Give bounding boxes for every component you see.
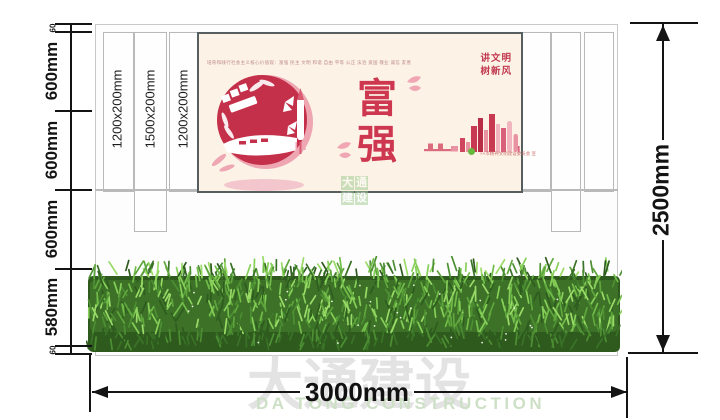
pink-leaf-spray bbox=[210, 152, 235, 173]
arrowhead-up-icon bbox=[656, 25, 670, 41]
post-size-label-2: 1500x200mm bbox=[143, 70, 158, 149]
dim-segment-bottom-cap: 60 bbox=[49, 346, 58, 355]
post-right-2 bbox=[551, 32, 581, 232]
dim-tick bbox=[55, 345, 92, 347]
total-height-label: 2500mm bbox=[646, 140, 677, 240]
arrowhead-right-icon bbox=[611, 386, 627, 398]
slogan-line-1: 讲文明 bbox=[480, 53, 512, 66]
arrowhead-down-icon bbox=[656, 335, 670, 351]
watermark-mini-logo: 大 通 建 设 bbox=[341, 176, 368, 205]
slogan-line-2: 树新风 bbox=[480, 66, 512, 79]
headline-flourish-icon bbox=[335, 74, 421, 182]
dim-tick bbox=[55, 189, 92, 191]
dim-segment-2: 600mm bbox=[42, 121, 62, 180]
dim-tick bbox=[55, 353, 92, 355]
construction-sign-drawing: 1200x200mm 1500x200mm 1200x200mm 培育和践行社会… bbox=[0, 0, 720, 420]
arrowhead-left-icon bbox=[92, 386, 108, 398]
papercut-circle-illustration bbox=[209, 72, 321, 194]
post-size-label-3: 1200x200mm bbox=[176, 70, 191, 149]
watermark-mini-char: 建 bbox=[341, 191, 354, 205]
slogan-text: 讲文明 树新风 bbox=[480, 53, 512, 78]
dim-segment-1: 600mm bbox=[42, 42, 62, 101]
post-right-3 bbox=[584, 32, 614, 192]
watermark-mini-char: 通 bbox=[355, 176, 368, 190]
dim-segment-top-cap: 60 bbox=[49, 24, 58, 33]
dim-segment-3: 600mm bbox=[42, 200, 62, 259]
dim-tick bbox=[55, 268, 92, 270]
credit-seal-icon bbox=[468, 148, 475, 155]
dim-tick bbox=[55, 23, 92, 25]
bottom-dimension-line bbox=[414, 391, 627, 393]
watermark-mini-char: 大 bbox=[341, 176, 354, 190]
watermark-mini-char: 设 bbox=[355, 191, 368, 205]
dim-tick bbox=[628, 352, 698, 354]
credit-text: ××市精神文明建设委员会 宣 bbox=[480, 151, 536, 157]
poster-board: 培育和践行社会主义核心价值观：富强 民主 文明 和谐 自由 平等 公正 法治 爱… bbox=[197, 32, 523, 193]
hedge-plants bbox=[86, 256, 622, 362]
bottom-dimension-line bbox=[92, 391, 300, 393]
dim-tick bbox=[55, 31, 92, 33]
dim-segment-4: 580mm bbox=[42, 278, 62, 337]
total-width-label: 3000mm bbox=[305, 377, 409, 408]
post-right-1 bbox=[522, 32, 551, 192]
post-size-label-1: 1200x200mm bbox=[110, 70, 125, 149]
dim-tick bbox=[630, 22, 698, 24]
core-values-text: 培育和践行社会主义核心价值观：富强 民主 文明 和谐 自由 平等 公正 法治 爱… bbox=[207, 60, 411, 66]
dim-tick bbox=[55, 110, 92, 112]
extension-line-left bbox=[89, 354, 91, 412]
